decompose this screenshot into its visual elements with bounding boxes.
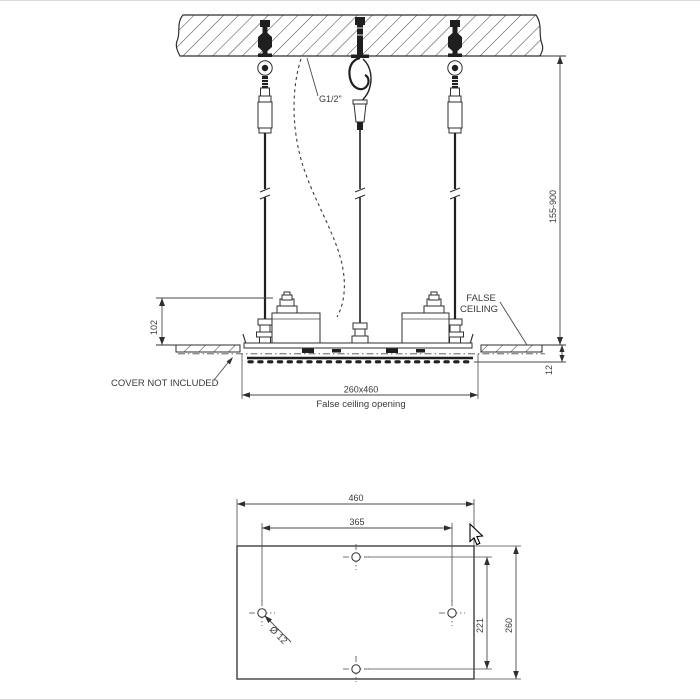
hole-spacing-vertical-text: 221 xyxy=(475,618,485,633)
structural-ceiling xyxy=(176,15,566,56)
overall-depth-text: 260 xyxy=(504,618,514,633)
hole-spacing-horizontal-text: 365 xyxy=(349,517,364,527)
false-ceiling-text-1: FALSE xyxy=(466,293,496,304)
overall-width-text: 460 xyxy=(348,493,363,503)
false-ceiling-left xyxy=(156,345,240,352)
mouse-cursor xyxy=(470,524,483,545)
panel-thickness-text: 12 xyxy=(544,365,554,375)
installation-drawing: G1/2" xyxy=(0,1,700,700)
false-ceiling-right xyxy=(481,345,566,352)
spray-plate xyxy=(247,358,473,362)
technical-drawing-page: G1/2" xyxy=(0,0,700,700)
hanger-right xyxy=(447,20,464,344)
body-height-text: 102 xyxy=(149,320,159,335)
plan-rectangle xyxy=(237,546,474,679)
dimension-body-height: 102 xyxy=(149,298,273,345)
dimension-overall-depth: 260 xyxy=(474,546,521,679)
false-ceiling-text-2: CEILING xyxy=(460,304,498,315)
hanger-left xyxy=(257,20,274,344)
label-cover-note: COVER NOT INCLUDED xyxy=(111,357,233,389)
hanger-middle-supply xyxy=(349,17,371,343)
cover-note-text: COVER NOT INCLUDED xyxy=(111,378,219,389)
label-false-ceiling: FALSE CEILING xyxy=(460,293,527,345)
label-supply-thread: G1/2" xyxy=(307,58,342,104)
opening-size-text: 260x460 xyxy=(344,385,379,395)
plan-view: 460 365 221 260 xyxy=(237,493,521,682)
supply-thread-text: G1/2" xyxy=(319,94,342,104)
suspension-range-text: 155-900 xyxy=(548,190,558,223)
dimension-suspension-range: 155-900 xyxy=(548,56,563,345)
opening-caption-text: False ceiling opening xyxy=(316,399,405,410)
